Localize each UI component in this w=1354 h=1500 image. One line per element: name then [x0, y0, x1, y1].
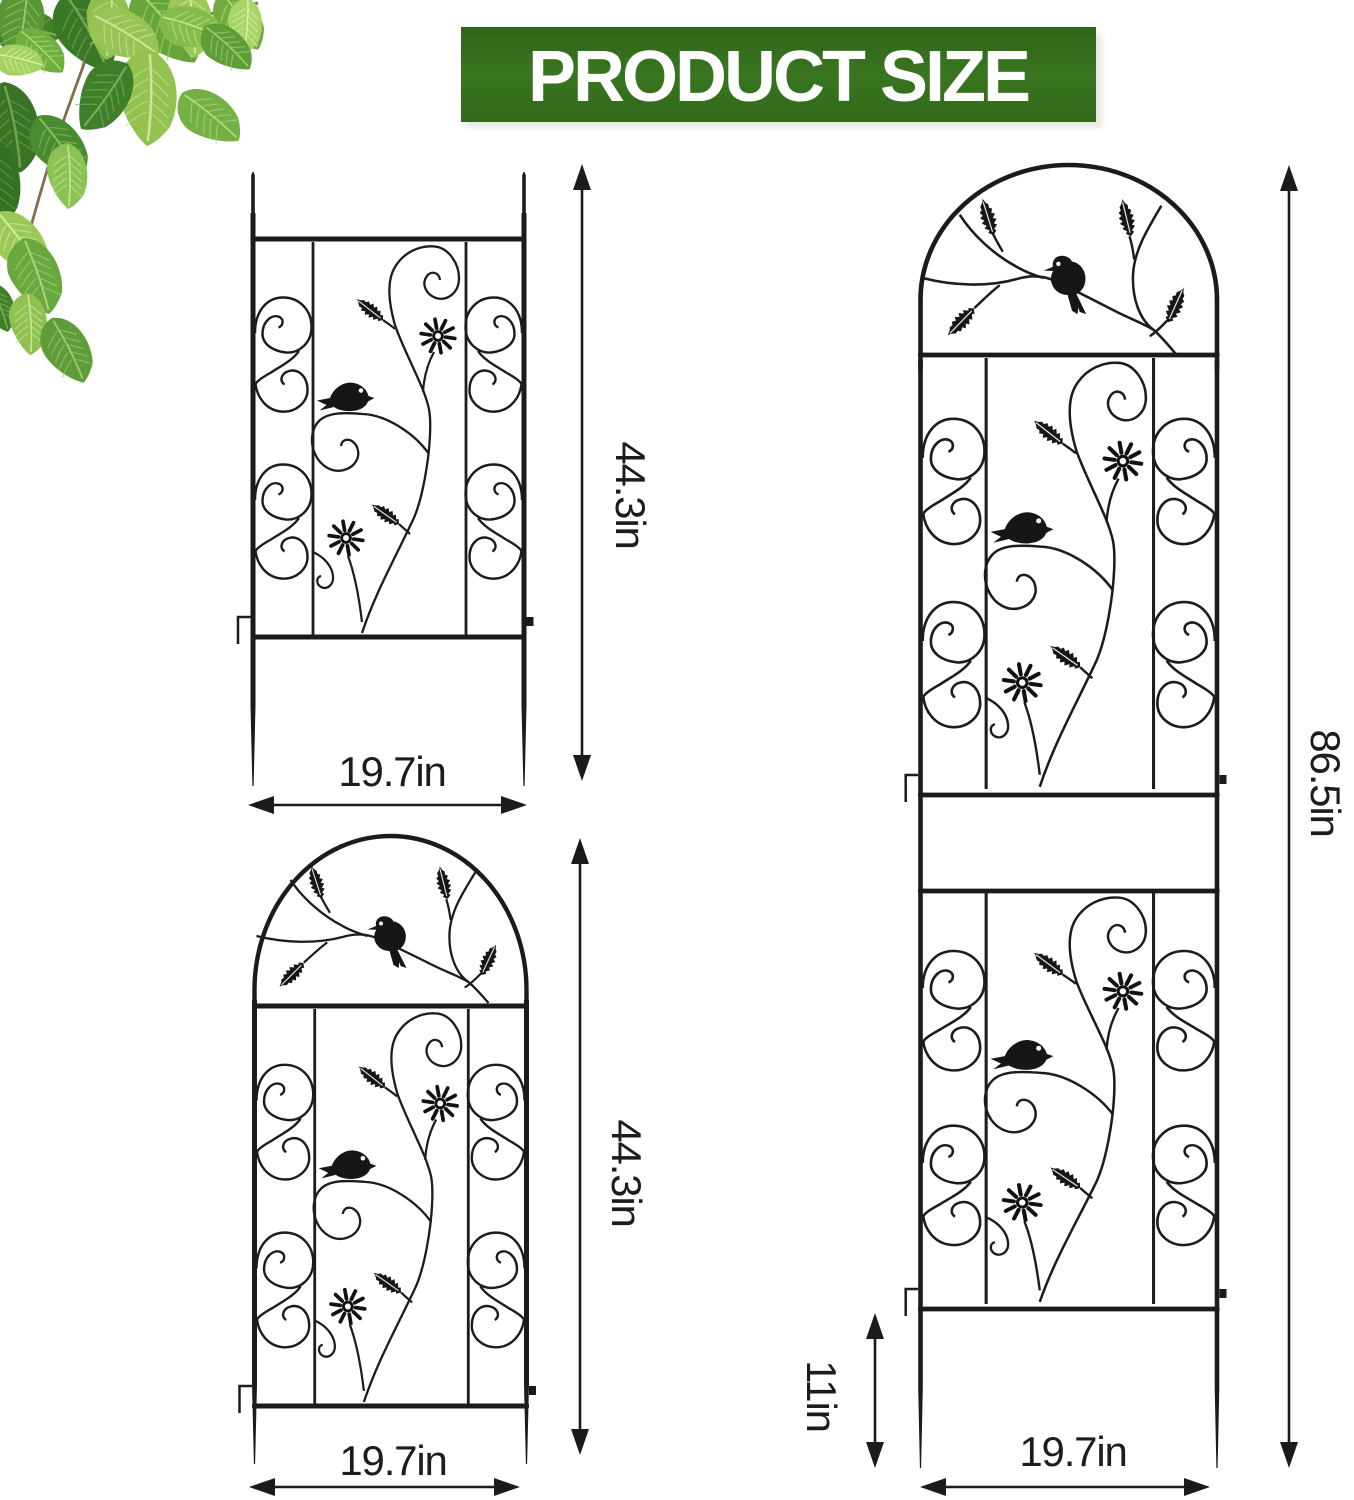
svg-text:44.3in: 44.3in [607, 441, 654, 548]
svg-text:86.5in: 86.5in [1302, 729, 1349, 836]
svg-text:19.7in: 19.7in [1019, 1428, 1126, 1475]
svg-text:19.7in: 19.7in [338, 748, 445, 795]
svg-text:11in: 11in [798, 1360, 845, 1432]
svg-text:19.7in: 19.7in [339, 1437, 446, 1484]
svg-text:44.3in: 44.3in [603, 1119, 650, 1226]
svg-text:PRODUCT SIZE: PRODUCT SIZE [528, 37, 1029, 117]
